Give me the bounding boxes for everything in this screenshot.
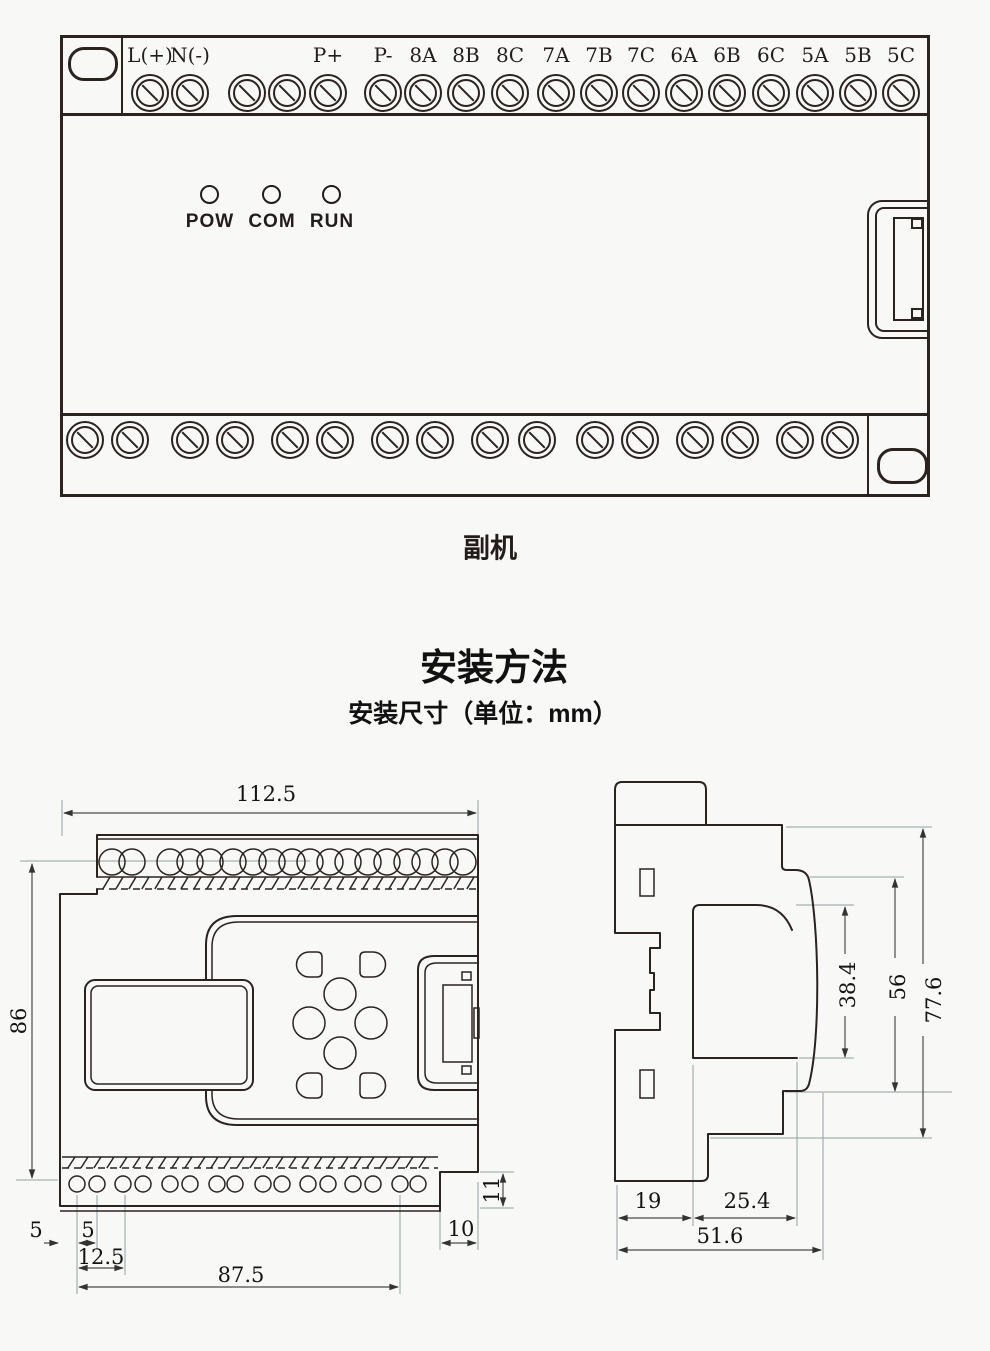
screw-terminal-icon [66, 421, 104, 459]
screw-terminal-icon [228, 74, 266, 112]
dim-mid-width: 25.4 [724, 1189, 771, 1213]
screw-terminal-icon [622, 74, 660, 112]
screw-terminal-icon [796, 74, 834, 112]
dim-total-width: 51.6 [697, 1224, 744, 1248]
dim-notch-height: 11 [480, 1177, 504, 1204]
terminal-label: P+ [313, 43, 343, 67]
side-device-outline [615, 782, 817, 1181]
terminal-label: 5B [844, 43, 871, 67]
bottom-strip-divider [63, 413, 927, 416]
screw-terminal-icon [576, 421, 614, 459]
screw-terminal-icon [471, 421, 509, 459]
dim-panel-depth: 38.4 [836, 962, 860, 1009]
terminal-label: 7C [627, 43, 655, 67]
screw-terminal-icon [171, 421, 209, 459]
dim-hole-span: 87.5 [218, 1263, 265, 1287]
screw-terminal-icon [131, 74, 169, 112]
expansion-connector-socket [893, 217, 924, 321]
screw-terminal-icon [171, 74, 209, 112]
terminal-label: 6B [713, 43, 740, 67]
screw-terminal-icon [665, 74, 703, 112]
screw-terminal-icon [839, 74, 877, 112]
top-left-cell-divider [121, 38, 123, 113]
front-top-holes [99, 849, 476, 875]
screw-terminal-icon [580, 74, 618, 112]
screw-terminal-icon [404, 74, 442, 112]
section-title: 安装方法 [420, 637, 568, 691]
bottom-right-cell-divider [867, 416, 869, 494]
led-icon [322, 185, 341, 204]
terminal-label: 6A [670, 43, 697, 67]
connector-key-bottom [911, 308, 923, 319]
screw-terminal-icon [416, 421, 454, 459]
screw-terminal-icon [621, 421, 659, 459]
dim-edge-to-hole: 5 [29, 1218, 42, 1242]
dim-overall-width: 112.5 [236, 782, 296, 806]
screw-terminal-icon [371, 421, 409, 459]
screw-terminal-icon [271, 421, 309, 459]
screw-terminal-icon [364, 74, 402, 112]
led-label: POW [186, 211, 234, 233]
dim-total-depth: 77.6 [922, 977, 946, 1024]
led-icon [200, 185, 219, 204]
led-label: COM [248, 211, 295, 233]
side-vent-slot-top [640, 869, 654, 896]
screw-terminal-icon [309, 74, 347, 112]
screw-terminal-icon [518, 421, 556, 459]
mounting-slot-top [68, 47, 118, 81]
mounting-slot-bottom [877, 448, 928, 484]
terminal-label: L(+) [127, 43, 173, 67]
terminal-label: 8B [452, 43, 479, 67]
screw-terminal-icon [268, 74, 306, 112]
dim-body-depth: 56 [886, 974, 910, 1001]
screw-terminal-icon [447, 74, 485, 112]
section-subtitle: 安装尺寸（单位：mm） [348, 694, 617, 730]
screw-terminal-icon [111, 421, 149, 459]
top-strip-divider [63, 113, 927, 116]
screw-terminal-icon [882, 74, 920, 112]
side-dimension-lines [619, 829, 923, 1250]
screw-terminal-icon [676, 421, 714, 459]
front-dimension-lines [32, 813, 503, 1287]
screw-terminal-icon [721, 421, 759, 459]
screw-terminal-icon [316, 421, 354, 459]
dim-hole-pitch: 5 [81, 1218, 94, 1242]
terminal-label: 8C [496, 43, 524, 67]
screw-terminal-icon [752, 74, 790, 112]
side-extension-lines [617, 827, 952, 1260]
terminal-label: N(-) [170, 43, 210, 67]
dim-back-width: 19 [635, 1189, 662, 1213]
front-device-outline [60, 835, 479, 1211]
side-view-drawing [560, 758, 990, 1333]
dim-overall-height: 86 [7, 1008, 31, 1035]
led-label: RUN [310, 211, 354, 233]
side-front-panel [693, 905, 797, 1058]
keypad [293, 952, 387, 1098]
screw-terminal-icon [216, 421, 254, 459]
manual-page: { "device": { "caption": "副机", "top_term… [0, 0, 990, 1351]
front-expansion-connector [418, 956, 479, 1090]
side-vent-slot-bottom [640, 1070, 654, 1098]
front-bottom-holes [69, 1176, 426, 1192]
screw-terminal-icon [776, 421, 814, 459]
terminal-label: 7B [585, 43, 612, 67]
dim-hole-offset: 12.5 [78, 1245, 125, 1269]
led-icon [262, 185, 281, 204]
screw-terminal-icon [821, 421, 859, 459]
terminal-label: 7A [542, 43, 569, 67]
connector-key-top [911, 218, 923, 229]
terminal-label: 5C [887, 43, 915, 67]
screw-terminal-icon [491, 74, 529, 112]
drawing-caption: 副机 [463, 527, 517, 566]
lcd-window [85, 980, 253, 1090]
terminal-label: 8A [409, 43, 436, 67]
dim-notch-width: 10 [448, 1217, 475, 1241]
screw-terminal-icon [708, 74, 746, 112]
screw-terminal-icon [537, 74, 575, 112]
expansion-connector [867, 200, 929, 339]
terminal-label: 5A [801, 43, 828, 67]
terminal-label: P- [373, 43, 392, 67]
terminal-label: 6C [757, 43, 785, 67]
